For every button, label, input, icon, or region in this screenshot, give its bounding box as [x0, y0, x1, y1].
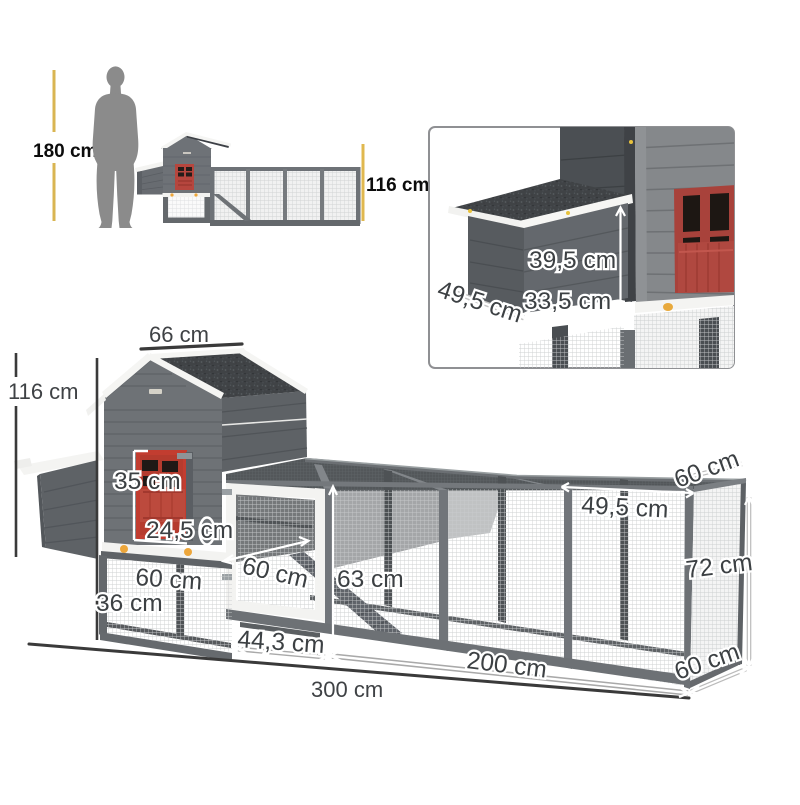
svg-text:36 cm: 36 cm	[96, 590, 163, 617]
svg-text:116 cm: 116 cm	[366, 175, 429, 196]
svg-text:33,5 cm: 33,5 cm	[524, 288, 611, 315]
svg-text:63 cm: 63 cm	[337, 566, 404, 593]
svg-text:116 cm: 116 cm	[8, 379, 79, 404]
svg-text:39,5 cm: 39,5 cm	[529, 247, 616, 274]
svg-text:300 cm: 300 cm	[311, 677, 383, 702]
svg-text:49,5 cm: 49,5 cm	[581, 492, 669, 524]
svg-text:24,5 cm: 24,5 cm	[146, 517, 233, 544]
svg-text:66 cm: 66 cm	[149, 322, 209, 347]
svg-text:180 cm: 180 cm	[33, 141, 97, 162]
svg-text:35 cm: 35 cm	[114, 468, 181, 495]
